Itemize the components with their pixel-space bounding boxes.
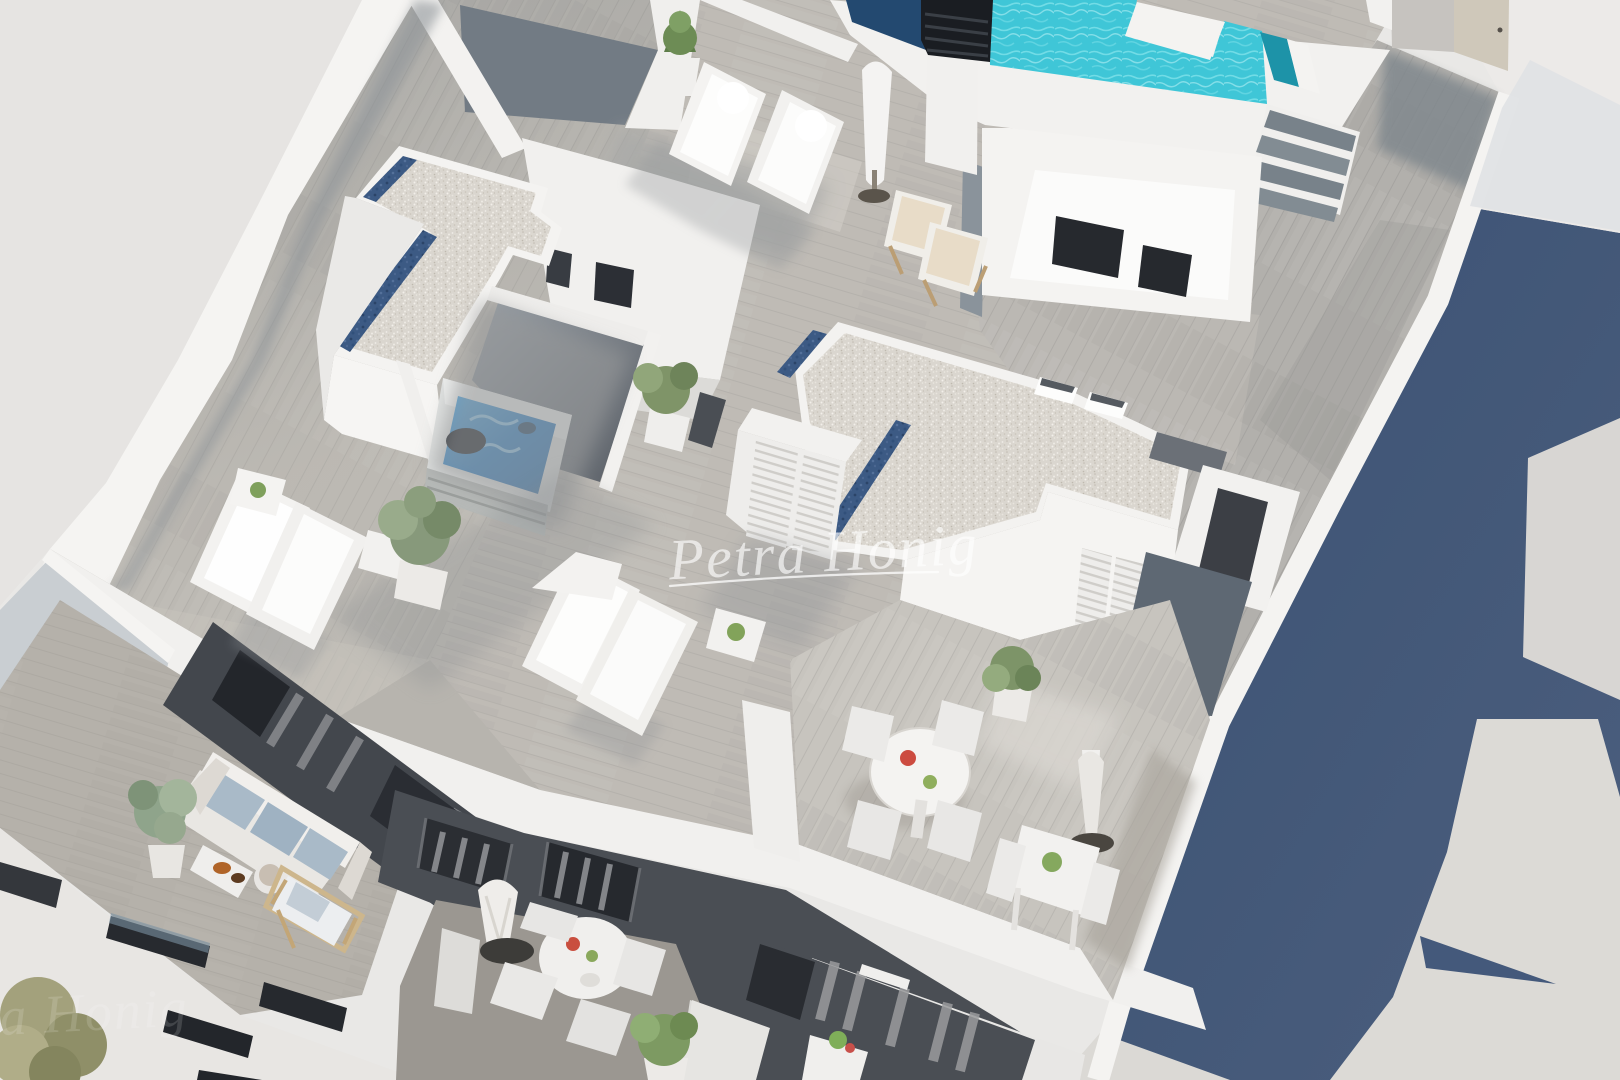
svg-text:tra Honig: tra Honig <box>0 977 190 1049</box>
